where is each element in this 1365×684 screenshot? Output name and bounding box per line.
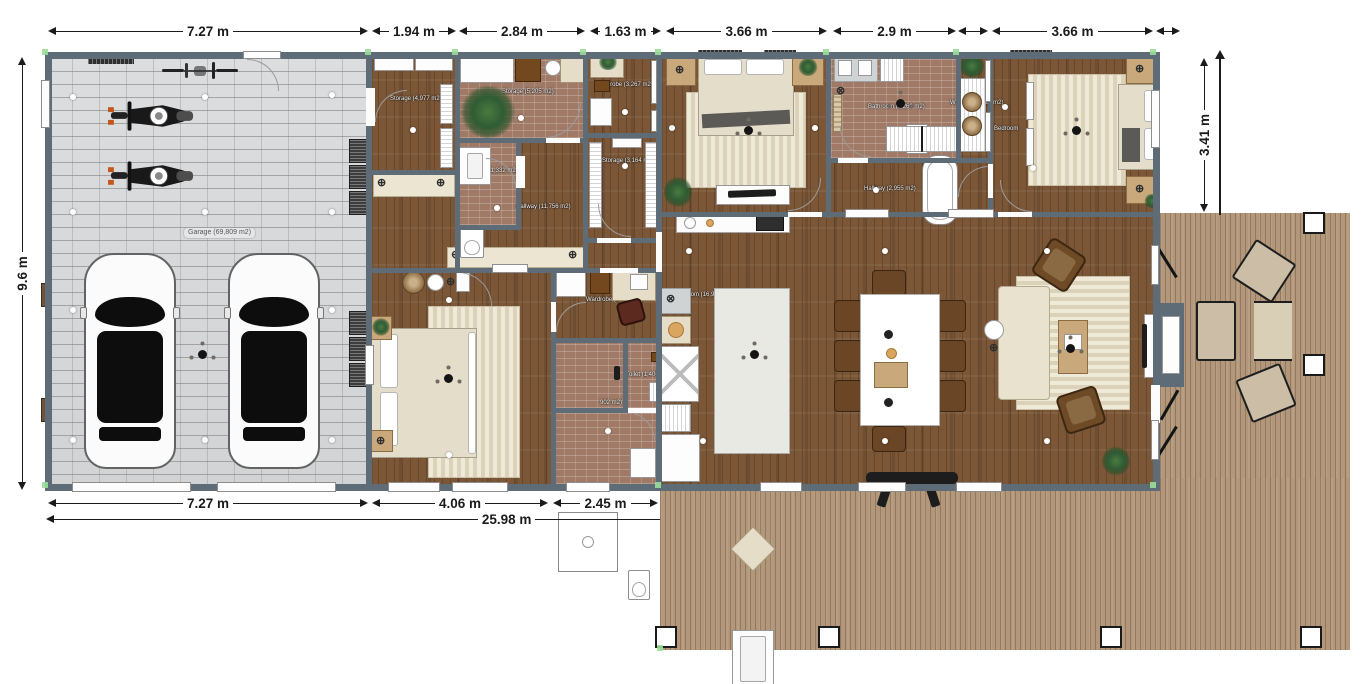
chest-icon[interactable]: [515, 58, 541, 82]
dimension-left-height: 9.6 m: [15, 57, 29, 490]
car-icon[interactable]: [228, 253, 320, 469]
sliding-door[interactable]: [985, 60, 991, 102]
shelf-icon[interactable]: [661, 404, 691, 432]
snap-marker: [1150, 49, 1156, 55]
room-label: 902 m2): [600, 400, 622, 407]
basket-icon[interactable]: [962, 92, 982, 112]
door-opening[interactable]: [551, 302, 556, 332]
door-leaf[interactable]: [1151, 420, 1159, 460]
cabinet-icon[interactable]: [374, 57, 414, 71]
cabinet-icon[interactable]: [630, 448, 656, 478]
wall: [368, 170, 458, 175]
pillow-icon: [704, 59, 742, 75]
ceiling-light[interactable]: [686, 248, 692, 254]
motorcycle-icon[interactable]: [108, 156, 196, 196]
plant-icon[interactable]: [372, 318, 390, 336]
window[interactable]: [956, 482, 1002, 492]
desk-icon[interactable]: [560, 57, 584, 83]
table-lamp-icon[interactable]: ⊕: [675, 65, 684, 76]
deck-post: [818, 626, 840, 648]
wardrobe-divider: [921, 126, 923, 152]
chest-icon[interactable]: [590, 272, 610, 294]
ceiling-light[interactable]: [329, 437, 335, 443]
sliding-door[interactable]: [651, 60, 657, 104]
wardrobe-icon[interactable]: [960, 78, 986, 152]
ceiling-light[interactable]: [518, 115, 524, 121]
snap-marker: [365, 49, 371, 55]
wall-lamp-icon[interactable]: ⊗: [836, 86, 845, 97]
chair-icon[interactable]: [834, 380, 862, 412]
basket-icon[interactable]: [962, 116, 982, 136]
door-opening[interactable]: [838, 158, 868, 163]
chair-icon[interactable]: [938, 380, 966, 412]
dimension-label: 3.66 m: [725, 24, 767, 39]
chair-icon[interactable]: [938, 300, 966, 332]
dimension: [1156, 24, 1180, 38]
window[interactable]: [760, 482, 802, 492]
ceiling-light[interactable]: [812, 125, 818, 131]
chair-icon[interactable]: [834, 340, 862, 372]
sofa-icon[interactable]: [998, 286, 1050, 400]
ceiling-light[interactable]: [1030, 165, 1036, 171]
dimension: [958, 24, 988, 38]
toilet-icon[interactable]: [628, 570, 650, 600]
ceiling-light[interactable]: [622, 109, 628, 115]
window[interactable]: [41, 80, 50, 128]
chair-icon[interactable]: [872, 426, 906, 452]
dimension-label: 2.45 m: [584, 496, 626, 511]
window[interactable]: [948, 209, 994, 218]
ceiling-light[interactable]: [605, 428, 611, 434]
window[interactable]: [365, 345, 374, 385]
table-lamp-icon[interactable]: ⊕: [446, 277, 455, 288]
dimension-label: 1.94 m: [393, 24, 435, 39]
dimension-right-height: 3.41 m: [1197, 58, 1211, 212]
ceiling-light[interactable]: [882, 438, 888, 444]
light-fixture[interactable]: [744, 126, 753, 135]
pillow-icon: [746, 59, 784, 75]
dimension-label: 4.06 m: [439, 496, 481, 511]
table-lamp-icon[interactable]: ⊕: [989, 343, 998, 354]
garage-door[interactable]: [72, 482, 191, 492]
ceiling-light[interactable]: [1044, 438, 1050, 444]
dimension-label: 3.66 m: [1051, 24, 1093, 39]
ceiling-light[interactable]: [446, 452, 452, 458]
door-opening[interactable]: [516, 156, 525, 188]
toilet-icon[interactable]: [460, 228, 484, 258]
dimension-label: 25.98 m: [482, 512, 532, 527]
ceiling-light[interactable]: [329, 209, 335, 215]
table-lamp-icon[interactable]: ⊕: [568, 250, 577, 261]
table-lamp-icon[interactable]: ⊕: [1135, 64, 1144, 75]
chair-icon[interactable]: [545, 60, 561, 76]
door-opening[interactable]: [546, 138, 580, 143]
room-label: Hallway (2,955 m2): [864, 186, 916, 193]
ceiling-light[interactable]: [202, 94, 208, 100]
dimension-label: 2.84 m: [501, 24, 543, 39]
ceiling-light[interactable]: [202, 437, 208, 443]
tray-icon: [874, 362, 908, 388]
ceiling-light[interactable]: [329, 307, 335, 313]
outdoor-sofa-icon[interactable]: [1196, 301, 1236, 361]
blanket-icon: [1122, 128, 1140, 162]
door-opening[interactable]: [788, 212, 822, 217]
garage-door[interactable]: [217, 482, 336, 492]
bench-icon[interactable]: [1026, 82, 1034, 120]
cabinet-icon[interactable]: [460, 57, 514, 83]
tv-icon[interactable]: [1142, 324, 1147, 368]
light-fixture[interactable]: [896, 99, 905, 108]
door-opening[interactable]: [998, 212, 1032, 217]
shower-faucet-icon: [614, 366, 620, 380]
table-lamp-icon[interactable]: ⊕: [376, 436, 385, 447]
wall: [623, 338, 628, 412]
light-fixture[interactable]: [1072, 126, 1081, 135]
snap-marker: [655, 49, 661, 55]
window[interactable]: [452, 482, 508, 492]
ceiling-light[interactable]: [202, 209, 208, 215]
door-opening[interactable]: [366, 88, 375, 126]
bread-icon: [668, 322, 684, 338]
sink-icon[interactable]: [858, 60, 872, 76]
fridge-icon[interactable]: [660, 434, 700, 482]
window[interactable]: [1151, 90, 1160, 148]
ceiling-light[interactable]: [70, 437, 76, 443]
wall: [583, 133, 660, 138]
chair-icon[interactable]: [938, 340, 966, 372]
wall: [826, 52, 831, 218]
bicycle-icon[interactable]: [160, 60, 240, 82]
dimension-arrow-up: [1215, 50, 1225, 59]
door-opening[interactable]: [988, 164, 993, 198]
sink-icon[interactable]: [732, 630, 774, 684]
kettle-icon: [706, 219, 714, 227]
table-lamp-icon[interactable]: ⊕: [377, 178, 386, 189]
wall: [658, 212, 1158, 217]
pillow-icon: [380, 334, 398, 388]
chair-icon[interactable]: [872, 270, 906, 296]
window[interactable]: [566, 482, 610, 492]
dimension-total-width: 25.98 m: [46, 512, 660, 526]
deck-post: [1300, 626, 1322, 648]
light-fixture[interactable]: [444, 374, 453, 383]
snap-marker: [657, 645, 663, 651]
dimension: 2.9 m: [833, 24, 956, 38]
dresser-icon[interactable]: [556, 271, 586, 297]
basket-icon[interactable]: [402, 271, 425, 294]
dresser-icon[interactable]: [590, 98, 612, 126]
sewing-machine-icon[interactable]: [594, 80, 610, 92]
ceiling-light[interactable]: [410, 127, 416, 133]
ceiling-light[interactable]: [494, 205, 500, 211]
dimension-label: 2.9 m: [877, 24, 912, 39]
plant-icon[interactable]: [798, 58, 818, 76]
round-table-icon[interactable]: [427, 274, 444, 291]
ceiling-light[interactable]: [1044, 248, 1050, 254]
kitchen-island[interactable]: [714, 288, 790, 454]
door-opening[interactable]: [600, 268, 638, 273]
wall-lamp-icon[interactable]: ⊗: [666, 294, 675, 305]
floor-lamp-icon[interactable]: [984, 320, 1004, 340]
dimension: 2.45 m: [553, 496, 658, 510]
washer-icon[interactable]: [880, 56, 904, 82]
dimension: 4.06 m: [372, 496, 548, 510]
light-fixture[interactable]: [1066, 344, 1075, 353]
door-opening[interactable]: [656, 232, 662, 272]
plant-icon[interactable]: [1102, 446, 1130, 476]
dimension-label: 7.27 m: [187, 496, 229, 511]
wall: [455, 225, 520, 230]
dimension-label: 3.41 m: [1197, 114, 1212, 156]
dimension: 7.27 m: [48, 24, 368, 38]
cabinet-icon[interactable]: [415, 57, 453, 71]
room-label: Garage (69,809 m2): [184, 228, 255, 238]
motorcycle-icon[interactable]: [108, 96, 196, 136]
door-opening[interactable]: [1151, 385, 1160, 423]
ceiling-light[interactable]: [70, 94, 76, 100]
sliding-door[interactable]: [985, 112, 991, 152]
snap-marker: [655, 482, 661, 488]
sink-icon[interactable]: [838, 60, 852, 76]
light-fixture[interactable]: [198, 350, 207, 359]
dimension: 2.84 m: [459, 24, 585, 38]
snap-marker: [580, 49, 586, 55]
sink-icon: [684, 217, 696, 229]
ceiling-light[interactable]: [70, 209, 76, 215]
ceiling-light[interactable]: [873, 187, 879, 193]
door-leaf[interactable]: [243, 51, 281, 59]
shelf-icon[interactable]: [440, 128, 453, 168]
ceiling-light[interactable]: [622, 163, 628, 169]
ceiling-light[interactable]: [882, 248, 888, 254]
ceiling-light[interactable]: [669, 125, 675, 131]
door-leaf[interactable]: [492, 264, 528, 273]
floor-plan-canvas: 7.27 m 1.94 m 2.84 m 1.63 m 3.66 m 2.9 m…: [0, 0, 1365, 684]
outdoor-table-icon[interactable]: [1254, 301, 1292, 361]
bed-footboard: [468, 332, 476, 454]
window[interactable]: [388, 482, 440, 492]
plant-icon[interactable]: [664, 176, 692, 208]
snap-marker: [823, 49, 829, 55]
door-opening[interactable]: [597, 238, 631, 243]
range-hood-icon[interactable]: [661, 346, 699, 402]
room-label: Bedroom: [994, 126, 1018, 133]
deck-bottom-floor[interactable]: [660, 478, 1350, 650]
bowl-icon: [884, 330, 893, 339]
snap-marker: [452, 49, 458, 55]
table-lamp-icon[interactable]: ⊕: [1135, 184, 1144, 195]
room-label: Hallway (11,756 m2): [516, 204, 571, 211]
ceiling-light[interactable]: [70, 307, 76, 313]
snap-marker: [1150, 482, 1156, 488]
ceiling-light[interactable]: [700, 438, 706, 444]
dimension: 7.27 m: [48, 496, 368, 510]
ceiling-light[interactable]: [1002, 104, 1008, 110]
dining-table-icon[interactable]: [860, 294, 940, 426]
car-icon[interactable]: [84, 253, 176, 469]
bench-icon[interactable]: [1026, 128, 1034, 166]
wall: [956, 52, 961, 158]
ceiling-light[interactable]: [329, 92, 335, 98]
door-opening[interactable]: [628, 408, 656, 413]
shelf-icon[interactable]: [440, 84, 453, 124]
chair-icon[interactable]: [834, 300, 862, 332]
dimension-extension-line: [1219, 58, 1221, 215]
window[interactable]: [858, 482, 906, 492]
sliding-door[interactable]: [651, 110, 657, 132]
dimension-label: 9.6 m: [15, 256, 30, 291]
door-leaf[interactable]: [1151, 245, 1159, 285]
dimension: 3.66 m: [666, 24, 827, 38]
dimension-label: 1.63 m: [604, 24, 646, 39]
mirror-icon[interactable]: [630, 274, 648, 290]
deck-post: [1303, 354, 1325, 376]
wall: [455, 52, 460, 270]
dimension: 1.63 m: [590, 24, 661, 38]
wall: [551, 338, 660, 343]
dimension: 1.94 m: [372, 24, 456, 38]
deck-post: [1303, 212, 1325, 234]
bowl-icon: [884, 398, 893, 407]
table-lamp-icon[interactable]: ⊕: [436, 178, 445, 189]
dimension: 3.66 m: [992, 24, 1153, 38]
deck-post: [1100, 626, 1122, 648]
stove-icon[interactable]: [756, 215, 784, 231]
dimension-label: 7.27 m: [187, 24, 229, 39]
ceiling-light[interactable]: [446, 297, 452, 303]
tv-nook-cabinet[interactable]: [1162, 316, 1180, 374]
cup-icon: [886, 348, 897, 359]
snap-marker: [953, 49, 959, 55]
window[interactable]: [845, 209, 889, 218]
snap-marker: [42, 49, 48, 55]
plant-icon[interactable]: [460, 86, 516, 138]
shelf-icon[interactable]: [612, 138, 642, 148]
snap-marker: [42, 482, 48, 488]
light-fixture[interactable]: [750, 350, 759, 359]
